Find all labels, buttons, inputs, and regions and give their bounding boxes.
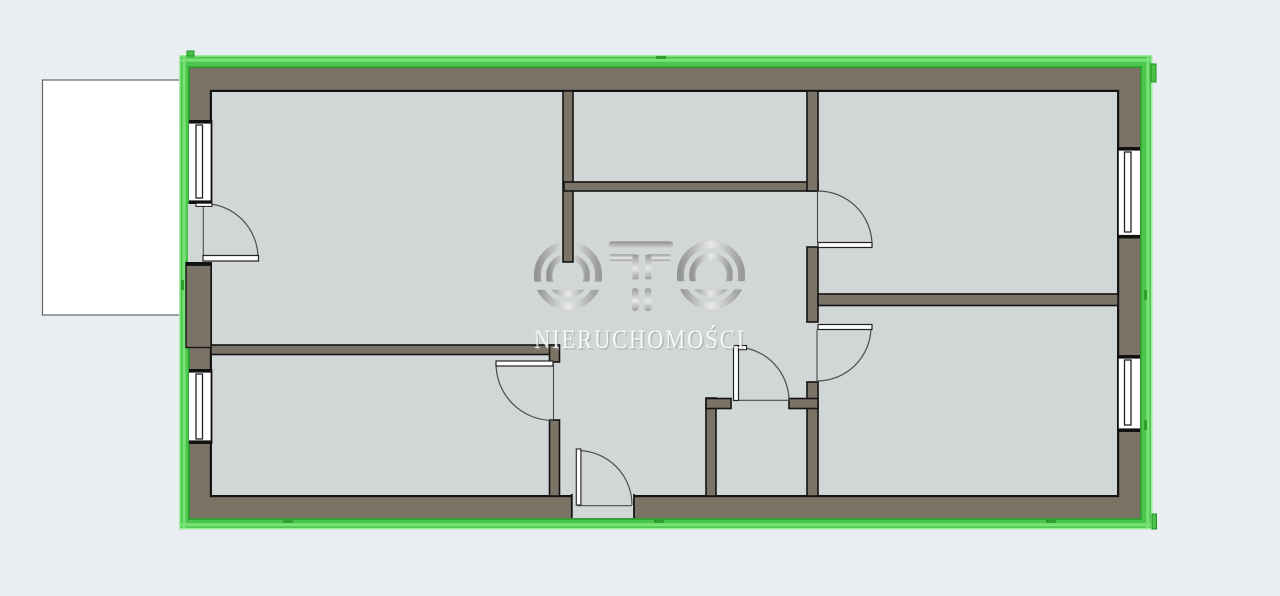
svg-text:NIERUCHOMOŚCI: NIERUCHOMOŚCI [534,325,746,354]
